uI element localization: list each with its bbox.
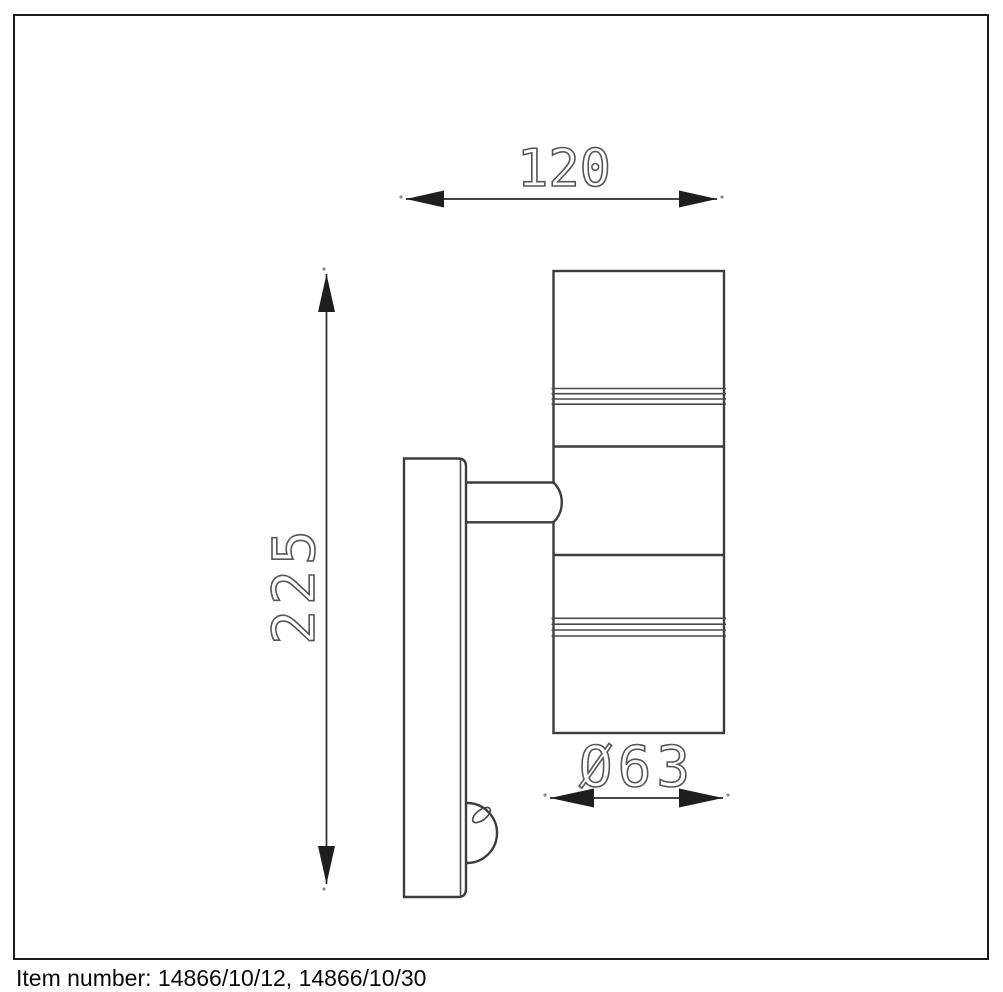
drawing-canvas: 120 225 [0,0,1003,992]
dim-width-arrow-right [679,191,717,208]
dim-height: 225 [260,267,335,890]
dim-height-label: 225 [260,525,328,645]
dim-height-tick-bottom [322,887,325,890]
item-number-label: Item number: 14866/10/12, 14866/10/30 [16,965,426,991]
dim-diameter-tick-right [726,793,729,796]
dim-diameter-label: Ø63 [579,735,695,800]
lamp-cylinder-body [554,271,725,733]
dim-height-arrow-bottom [318,846,335,884]
technical-drawing-page: 120 225 [0,0,1003,992]
dim-diameter-tick-left [543,793,546,796]
dim-diameter: Ø63 [543,735,729,808]
dim-width-tick-right [720,195,723,198]
mounting-arm-fill [467,484,562,521]
dim-diameter-arrow-left [550,789,594,808]
dim-height-arrow-top [318,274,335,312]
dim-width-arrow-left [406,191,444,208]
dim-width-label: 120 [517,139,611,199]
wall-lamp-fixture [404,271,726,897]
dim-width: 120 [399,139,723,208]
wall-mounting-plate [404,459,466,898]
dim-height-tick-top [322,267,325,270]
dim-width-tick-left [399,195,402,198]
dim-diameter-arrow-right [679,789,723,808]
